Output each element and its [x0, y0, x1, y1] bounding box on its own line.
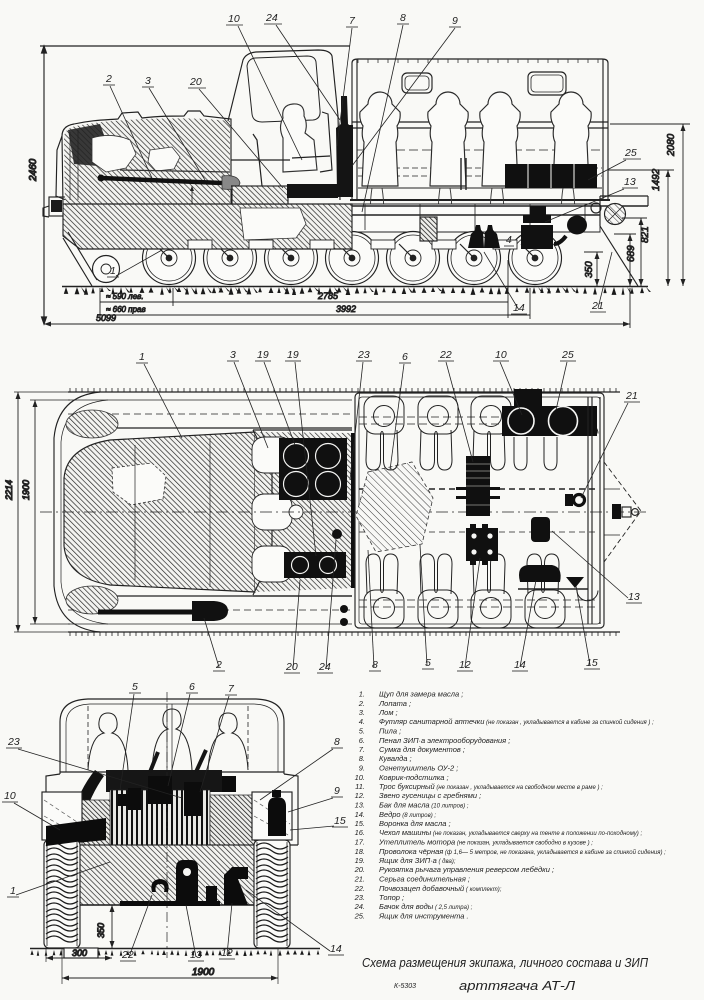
- svg-text:9: 9: [334, 785, 340, 797]
- svg-text:10: 10: [495, 349, 507, 361]
- svg-text:13: 13: [628, 591, 640, 603]
- svg-text:22: 22: [439, 349, 452, 361]
- svg-text:Ящик для инструмента .: Ящик для инструмента .: [378, 912, 469, 921]
- svg-text:Огнетушитель ОУ-2 ;: Огнетушитель ОУ-2 ;: [379, 764, 458, 773]
- svg-text:22: 22: [121, 949, 134, 961]
- svg-text:11.: 11.: [355, 782, 365, 791]
- svg-text:21: 21: [625, 390, 638, 402]
- svg-text:2214: 2214: [4, 480, 14, 501]
- svg-text:8: 8: [334, 736, 340, 748]
- svg-text:14.: 14.: [355, 810, 365, 819]
- svg-text:14: 14: [513, 302, 525, 314]
- svg-text:8: 8: [400, 12, 406, 24]
- svg-text:8: 8: [372, 659, 378, 671]
- svg-text:19: 19: [287, 349, 299, 361]
- svg-text:1900: 1900: [192, 967, 215, 978]
- svg-text:15.: 15.: [355, 819, 365, 828]
- svg-text:25: 25: [624, 147, 637, 159]
- svg-text:1.: 1.: [359, 690, 365, 699]
- svg-text:21.: 21.: [354, 875, 365, 884]
- svg-text:25.: 25.: [354, 912, 365, 921]
- svg-text:350: 350: [96, 923, 106, 938]
- svg-text:Лопата ;: Лопата ;: [378, 699, 411, 708]
- svg-text:18.: 18.: [355, 847, 365, 856]
- svg-text:3992: 3992: [336, 304, 356, 314]
- svg-text:Почвозацеп добавочный ( компл: Почвозацеп добавочный ( комплект);: [379, 884, 502, 893]
- svg-text:20: 20: [285, 661, 298, 673]
- svg-text:1900: 1900: [21, 480, 31, 500]
- svg-text:15: 15: [334, 815, 346, 827]
- svg-text:Чехол машины (не показан, укл: Чехол машины (не показан, укладывается с…: [379, 828, 642, 837]
- svg-text:13: 13: [624, 176, 636, 188]
- svg-text:20.: 20.: [354, 865, 365, 874]
- svg-text:350: 350: [584, 261, 595, 278]
- svg-text:Футляр санитарной аптечки (не: Футляр санитарной аптечки (не показан , …: [379, 717, 654, 726]
- svg-text:13.: 13.: [355, 801, 365, 810]
- svg-text:689: 689: [626, 245, 637, 262]
- svg-text:23.: 23.: [354, 893, 365, 902]
- svg-text:20: 20: [189, 76, 202, 88]
- svg-text:К-5303: К-5303: [394, 983, 416, 990]
- svg-text:2460: 2460: [28, 158, 39, 182]
- svg-text:15: 15: [586, 657, 598, 669]
- svg-text:2080: 2080: [666, 133, 677, 157]
- svg-text:2: 2: [105, 73, 112, 85]
- svg-text:8.: 8.: [359, 754, 365, 763]
- svg-text:Пила ;: Пила ;: [379, 727, 401, 736]
- svg-text:1: 1: [139, 351, 145, 363]
- svg-text:10.: 10.: [355, 773, 365, 782]
- svg-text:Сумка для документов ;: Сумка для документов ;: [379, 745, 465, 754]
- svg-text:Бачок для воды ( 2,5 литра) ;: Бачок для воды ( 2,5 литра) ;: [379, 902, 473, 911]
- svg-text:14: 14: [514, 659, 526, 671]
- svg-text:Трос буксирный (не показан ,: Трос буксирный (не показан , укладываетс…: [379, 782, 603, 791]
- svg-text:9: 9: [452, 15, 458, 27]
- svg-text:16.: 16.: [355, 828, 365, 837]
- svg-text:Пенал ЗИП·а электрооборудовани: Пенал ЗИП·а электрооборудования ;: [379, 736, 510, 745]
- svg-text:23: 23: [7, 736, 20, 748]
- svg-text:21: 21: [591, 300, 604, 312]
- svg-text:300: 300: [72, 948, 87, 958]
- svg-text:2.: 2.: [358, 699, 365, 708]
- svg-text:Лом ;: Лом ;: [378, 708, 398, 717]
- svg-text:19: 19: [257, 349, 269, 361]
- svg-text:23: 23: [357, 349, 370, 361]
- svg-text:2785: 2785: [317, 291, 339, 301]
- svg-text:≈ 590 лев.: ≈ 590 лев.: [106, 292, 144, 301]
- svg-text:Воронка для масла ;: Воронка для масла ;: [379, 819, 451, 828]
- svg-text:5: 5: [425, 657, 431, 669]
- svg-text:25: 25: [561, 349, 574, 361]
- svg-text:5: 5: [132, 681, 138, 693]
- svg-text:9.: 9.: [359, 764, 365, 773]
- svg-text:Схема размещения экипажа, личн: Схема размещения экипажа, личного состав…: [362, 955, 648, 970]
- svg-text:3.: 3.: [359, 708, 365, 717]
- svg-text:821: 821: [640, 226, 651, 243]
- svg-text:10: 10: [228, 13, 240, 25]
- svg-text:3: 3: [230, 349, 236, 361]
- svg-text:Ведро (8 литров) ;: Ведро (8 литров) ;: [379, 810, 436, 819]
- svg-text:1: 1: [10, 885, 16, 897]
- svg-text:Бак для масла (10 литров) ;: Бак для масла (10 литров) ;: [379, 801, 469, 810]
- svg-text:Топор ;: Топор ;: [379, 893, 404, 902]
- svg-text:Звено гусеницы с гребнями ;: Звено гусеницы с гребнями ;: [379, 791, 481, 800]
- svg-text:24.: 24.: [354, 902, 365, 911]
- svg-text:3: 3: [145, 75, 151, 87]
- svg-text:Рукоятка рычага управления рев: Рукоятка рычага управления реверсом лебё…: [379, 865, 554, 874]
- svg-text:5099: 5099: [96, 313, 116, 323]
- svg-text:4: 4: [506, 234, 512, 246]
- svg-text:6: 6: [189, 681, 195, 693]
- svg-text:1492: 1492: [651, 168, 662, 191]
- svg-text:Проволока чёрная (ф 1,6— 5 ме: Проволока чёрная (ф 1,6— 5 метров, не по…: [379, 847, 666, 856]
- svg-text:24: 24: [265, 12, 278, 24]
- svg-text:Щуп для замера масла ;: Щуп для замера масла ;: [379, 690, 463, 699]
- svg-text:Серьга соединительная ;: Серьга соединительная ;: [379, 875, 470, 884]
- svg-text:4.: 4.: [359, 717, 365, 726]
- svg-text:Ящик для ЗИП·а ( два);: Ящик для ЗИП·а ( два);: [378, 856, 456, 865]
- svg-text:24: 24: [318, 661, 331, 673]
- svg-text:Утеплитель мотора (не показан: Утеплитель мотора (не показан, укладывае…: [378, 838, 593, 847]
- svg-text:19.: 19.: [355, 856, 365, 865]
- svg-text:7.: 7.: [359, 745, 365, 754]
- svg-text:арттягача АТ-Л: арттягача АТ-Л: [459, 978, 576, 993]
- svg-text:17.: 17.: [355, 838, 365, 847]
- svg-text:22.: 22.: [354, 884, 365, 893]
- svg-text:5.: 5.: [359, 727, 365, 736]
- svg-text:6: 6: [402, 351, 408, 363]
- svg-text:7: 7: [228, 683, 235, 695]
- svg-text:14: 14: [330, 943, 342, 955]
- svg-text:10: 10: [4, 790, 16, 802]
- svg-text:12.: 12.: [355, 791, 365, 800]
- svg-text:7: 7: [349, 15, 356, 27]
- svg-text:1: 1: [110, 265, 116, 277]
- svg-text:Коврик-подстилка ;: Коврик-подстилка ;: [379, 773, 449, 782]
- svg-text:6.: 6.: [359, 736, 365, 745]
- svg-text:Кувалда ;: Кувалда ;: [379, 754, 412, 763]
